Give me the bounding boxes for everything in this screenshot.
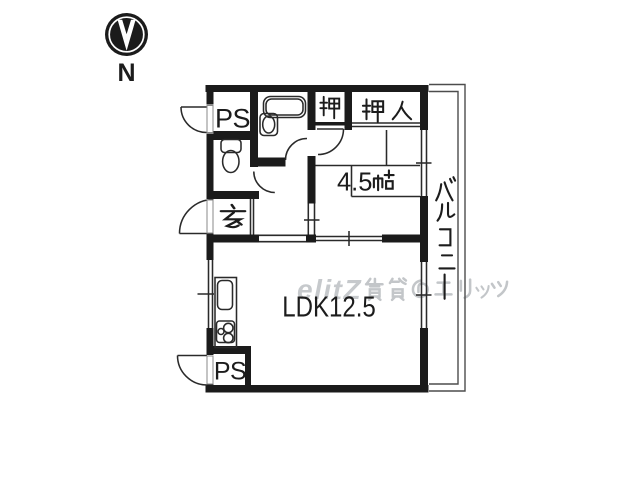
svg-text:PS: PS: [215, 104, 250, 134]
svg-text:PS: PS: [214, 358, 246, 386]
svg-text:4.5: 4.5: [337, 169, 372, 197]
svg-text:LDK12.5: LDK12.5: [282, 290, 376, 323]
svg-text:N: N: [117, 59, 135, 87]
